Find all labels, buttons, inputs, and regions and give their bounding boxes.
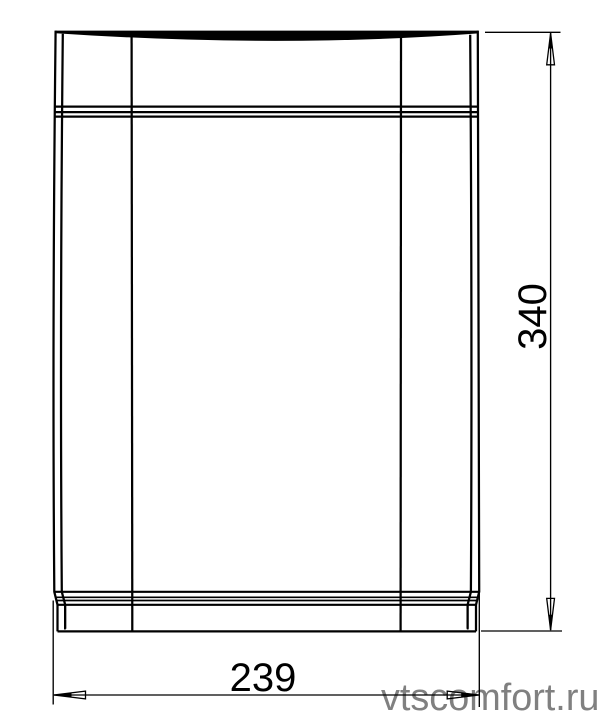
svg-text:239: 239 [230, 656, 297, 700]
svg-text:vtscomfort.ru: vtscomfort.ru [381, 677, 599, 719]
svg-text:340: 340 [511, 283, 555, 350]
